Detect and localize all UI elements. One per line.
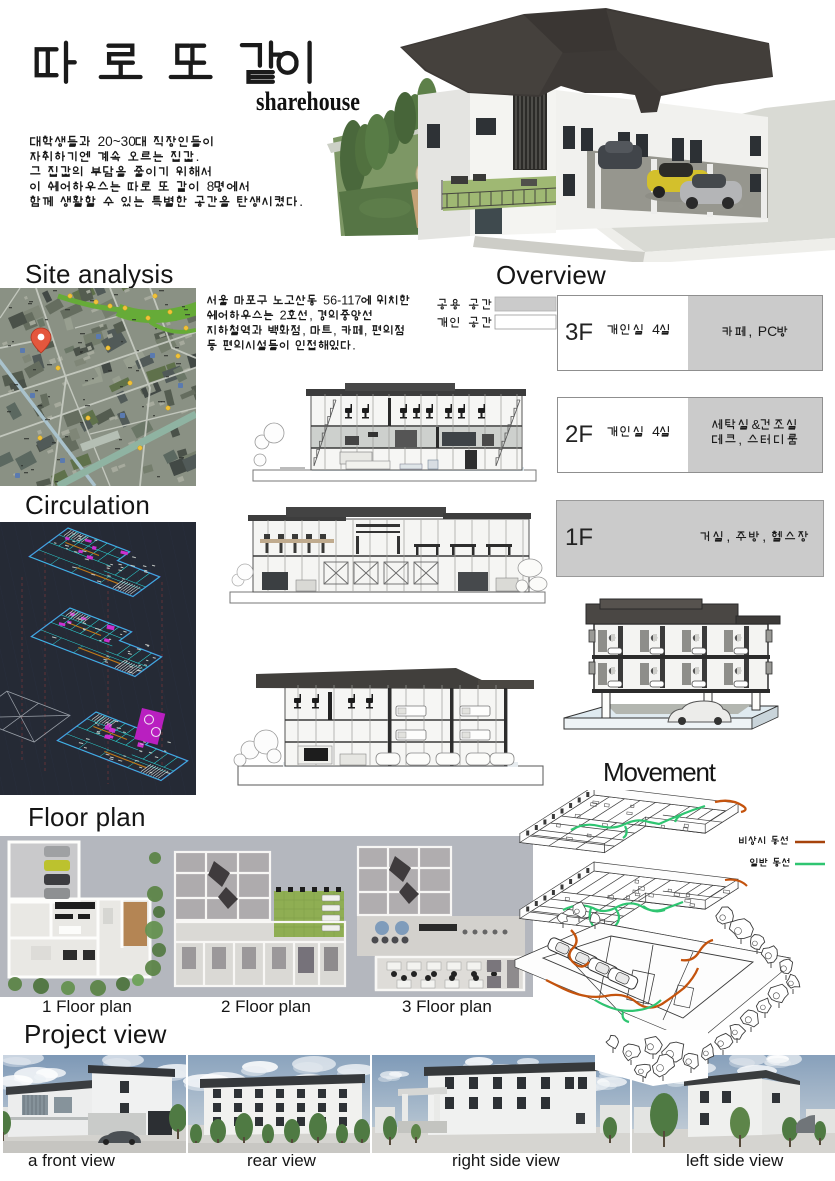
svg-text:PC: PC xyxy=(758,325,777,339)
svg-text:&: & xyxy=(752,418,761,432)
svg-text:.: . xyxy=(352,339,356,353)
svg-text:4: 4 xyxy=(652,323,660,337)
svg-text:,: , xyxy=(762,530,766,544)
svg-text:,: , xyxy=(726,530,730,544)
svg-text:4: 4 xyxy=(652,425,660,439)
svg-text:,: , xyxy=(748,325,752,339)
svg-text:,: , xyxy=(738,433,742,447)
